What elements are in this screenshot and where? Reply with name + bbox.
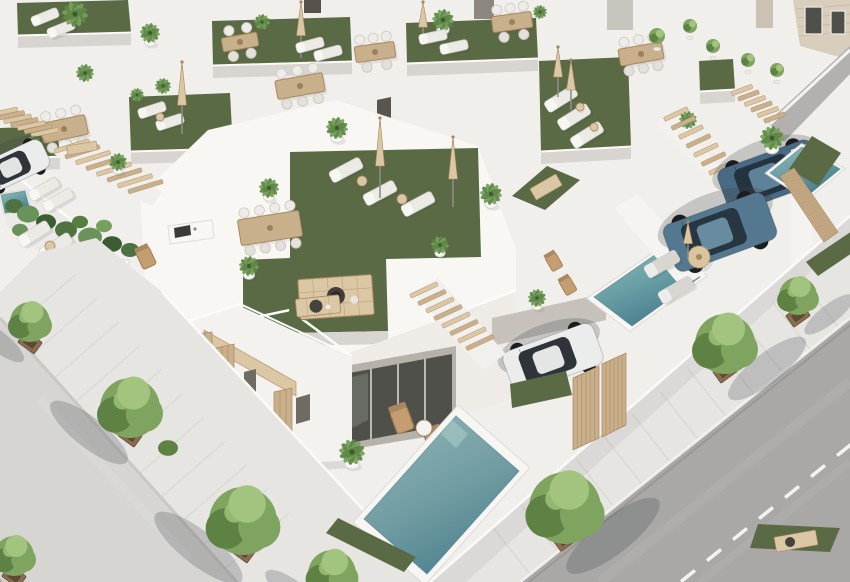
patio-door bbox=[607, 0, 633, 30]
parasol-finial bbox=[686, 220, 689, 223]
palm-crown bbox=[535, 296, 539, 300]
canopy-highlight bbox=[19, 311, 31, 323]
side-table bbox=[590, 123, 598, 131]
palm-crown bbox=[267, 186, 271, 190]
canopy-highlight bbox=[319, 561, 333, 575]
canopy-highlight bbox=[3, 545, 15, 557]
palm-crown bbox=[161, 84, 164, 87]
facade-window bbox=[805, 7, 822, 34]
plant-pot bbox=[745, 70, 751, 73]
palm-crown bbox=[489, 192, 493, 196]
palm-crown bbox=[136, 94, 139, 97]
foliage bbox=[656, 30, 664, 38]
foliage bbox=[776, 64, 783, 71]
parasol-finial bbox=[180, 60, 183, 63]
parasol-finial bbox=[451, 135, 454, 138]
palm-crown bbox=[148, 31, 152, 35]
parasol-finial bbox=[421, 0, 424, 3]
recessed-door bbox=[474, 0, 494, 19]
palm-crown bbox=[260, 20, 263, 23]
palm-crown bbox=[539, 11, 542, 14]
render-canvas: Aerial 3D architectural rendering of a b… bbox=[0, 0, 850, 582]
side-table bbox=[357, 176, 367, 186]
canopy-highlight bbox=[788, 286, 799, 297]
palm-crown bbox=[72, 11, 77, 16]
parasol-finial bbox=[556, 45, 559, 48]
foliage bbox=[712, 40, 719, 47]
canopy-highlight bbox=[709, 328, 727, 346]
palm-crown bbox=[83, 71, 87, 75]
architectural-render: Aerial 3D architectural rendering of a b… bbox=[0, 0, 850, 582]
dark-doorway bbox=[304, 0, 321, 13]
tap bbox=[193, 227, 196, 230]
facade-window bbox=[831, 11, 845, 34]
palm-crown bbox=[349, 449, 354, 454]
palapa-pole bbox=[696, 254, 702, 260]
plant-pot bbox=[774, 80, 780, 83]
plant-cluster bbox=[17, 205, 39, 222]
canopy-highlight bbox=[545, 488, 567, 510]
side-table bbox=[397, 194, 407, 204]
dark-window-slot bbox=[296, 394, 310, 424]
foliage bbox=[747, 54, 754, 61]
canopy-highlight bbox=[224, 502, 244, 522]
side-table bbox=[156, 113, 164, 121]
palm-crown bbox=[441, 18, 445, 22]
timber-slat-panel bbox=[573, 366, 599, 450]
palm-crown bbox=[335, 126, 339, 130]
palm-crown bbox=[247, 264, 251, 268]
side-table bbox=[576, 103, 584, 111]
timber-door bbox=[756, 0, 773, 28]
plant-pot bbox=[687, 36, 693, 39]
parasol-finial bbox=[299, 0, 302, 3]
plant-cluster bbox=[158, 440, 178, 456]
plant-pot bbox=[710, 56, 716, 59]
parasol-finial bbox=[569, 58, 572, 61]
plant-cluster bbox=[96, 220, 112, 232]
timber-slat-panel bbox=[602, 353, 626, 437]
palm-crown bbox=[116, 160, 120, 164]
side-table bbox=[416, 420, 432, 436]
palm-crown bbox=[770, 136, 775, 141]
plant-pot bbox=[653, 47, 660, 51]
roof-terrace-turf bbox=[699, 59, 735, 92]
plant-cluster bbox=[72, 216, 88, 228]
palm-crown bbox=[438, 243, 442, 247]
foliage bbox=[689, 20, 696, 27]
parasol-finial bbox=[378, 116, 381, 119]
canopy-highlight bbox=[114, 392, 132, 410]
